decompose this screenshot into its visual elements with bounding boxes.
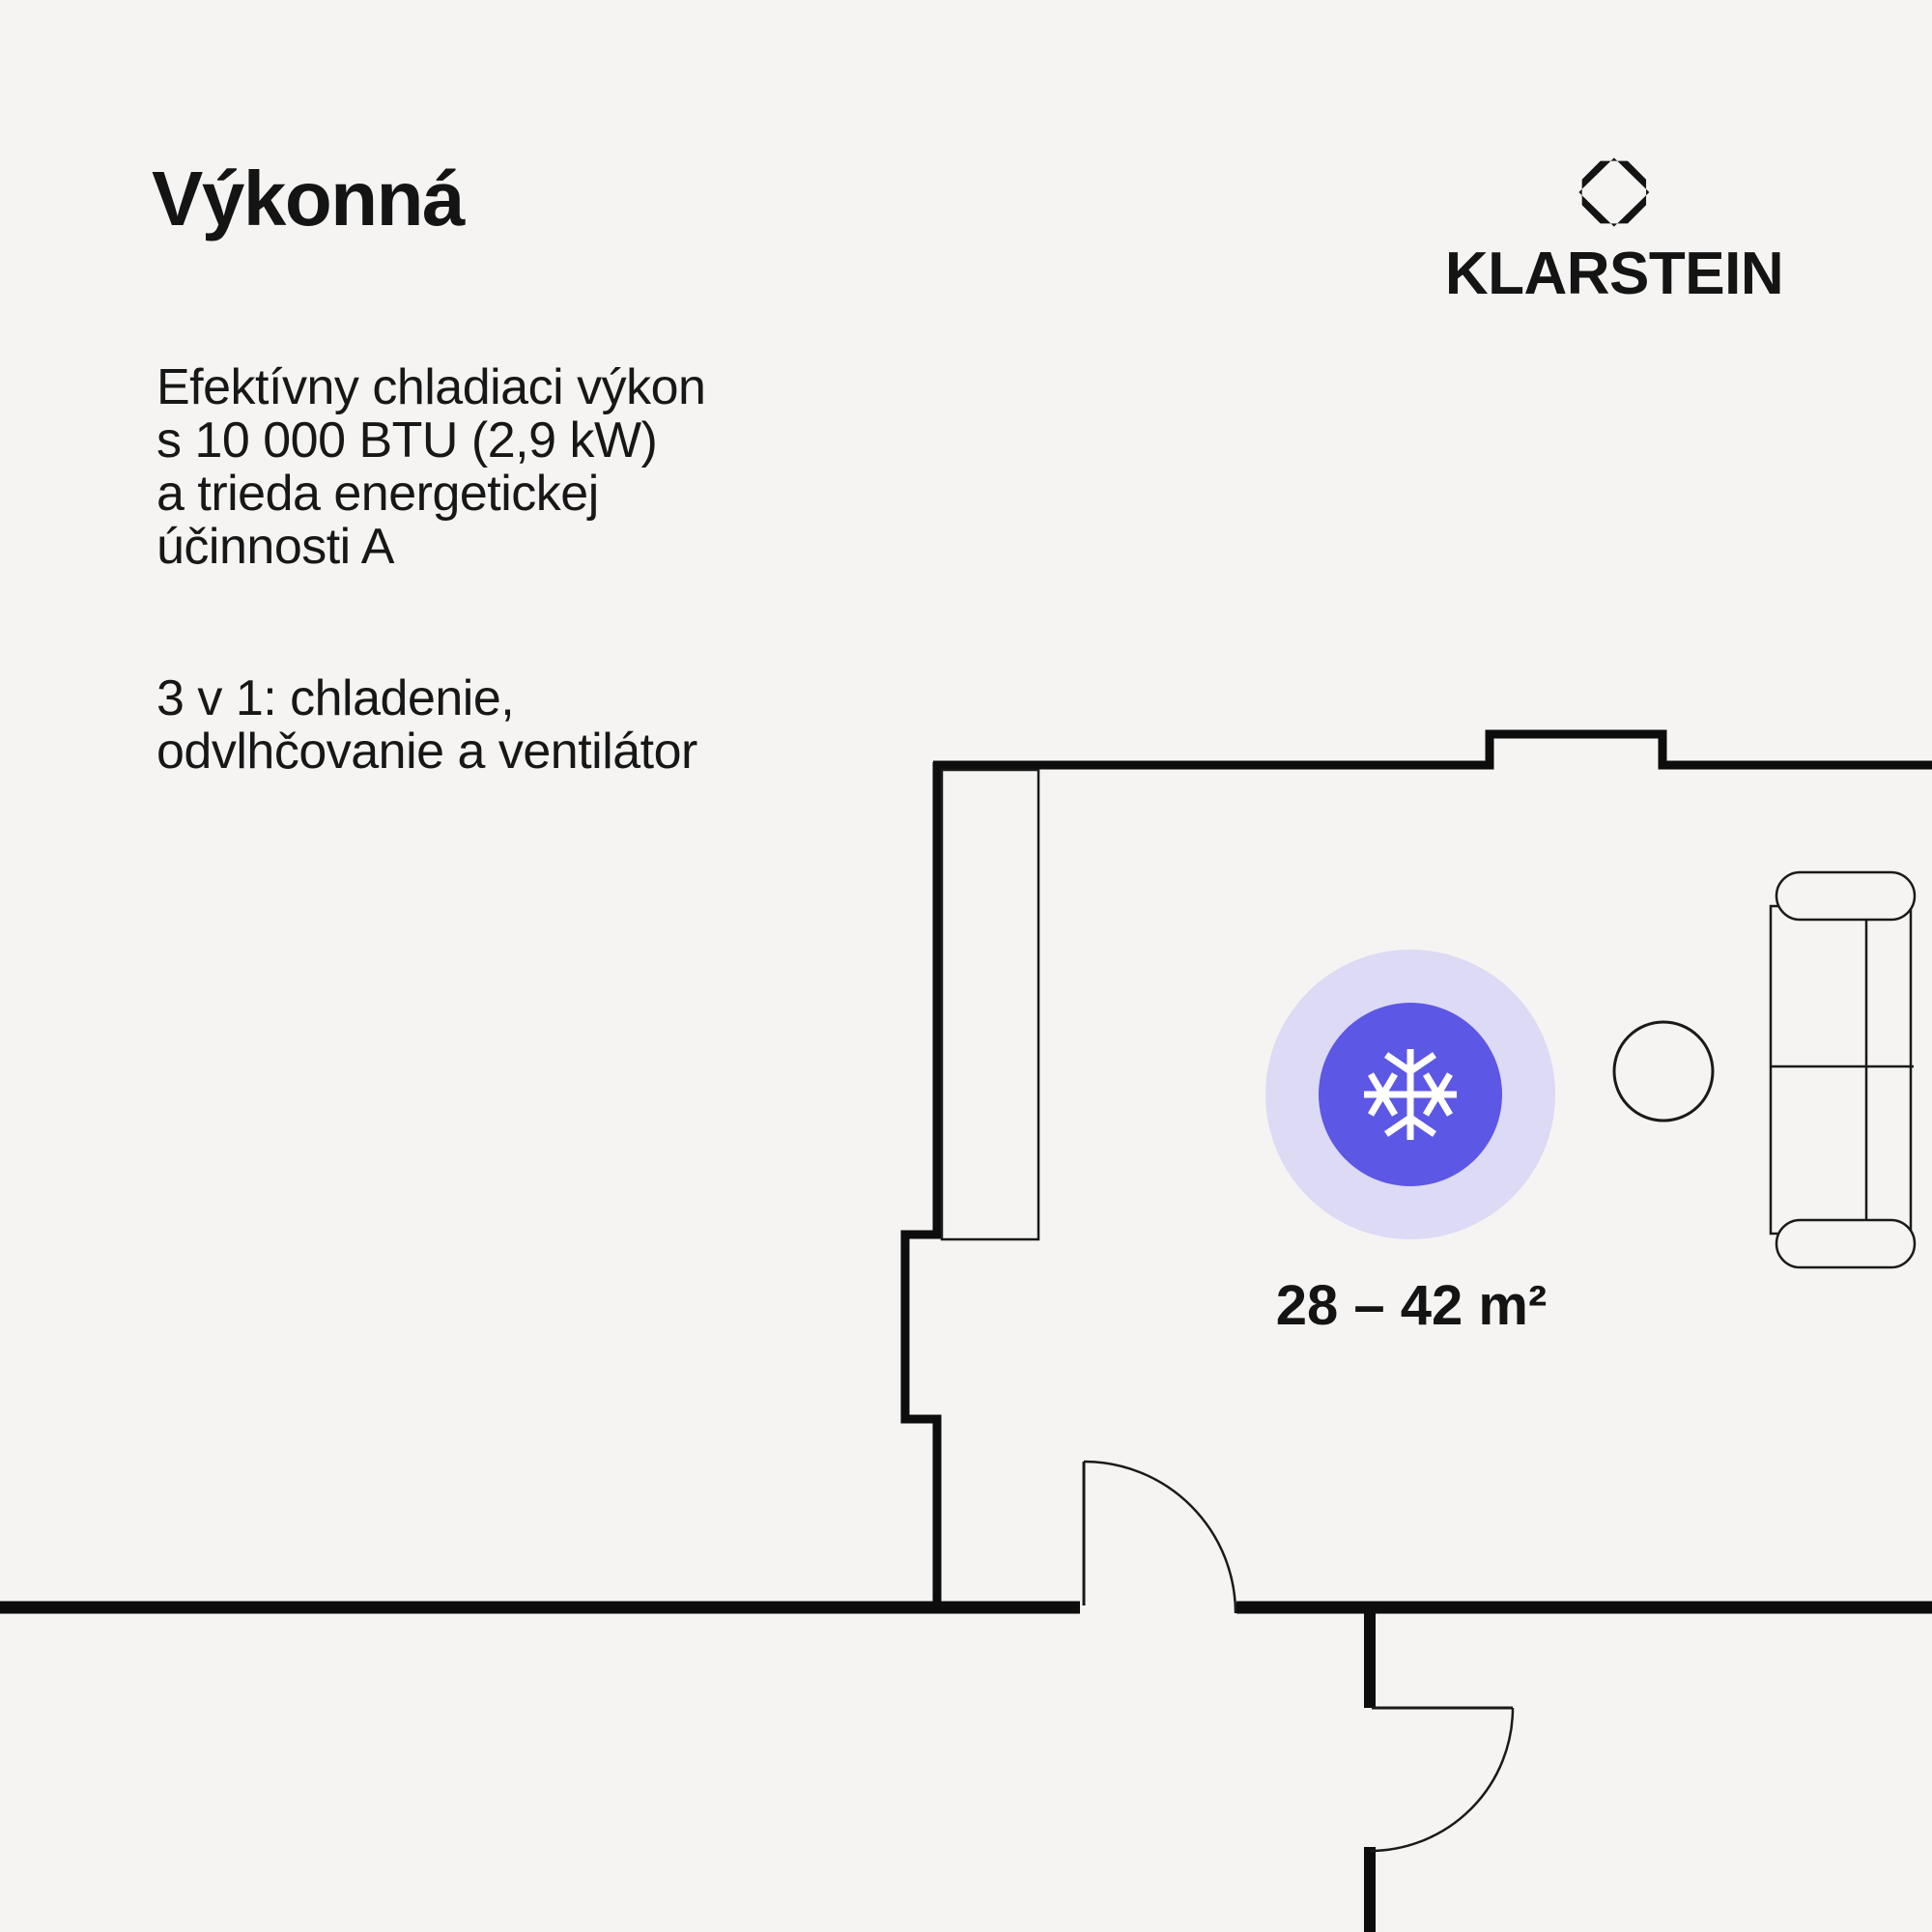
brand-logo: KLARSTEIN (1445, 155, 1783, 304)
feature-paragraph-3in1: 3 v 1: chladenie, odvlhčovanie a ventilá… (156, 672, 697, 779)
cabinet (942, 770, 1038, 1239)
klarstein-octagon-icon (1576, 155, 1653, 230)
door-swing-arc-right (1370, 1708, 1513, 1851)
paragraph-line: a trieda energetickej (156, 468, 705, 521)
paragraph-line: 3 v 1: chladenie, (156, 672, 697, 725)
paragraph-line: s 10 000 BTU (2,9 kW) (156, 414, 705, 468)
area-label: 28 – 42 m² (1276, 1273, 1548, 1338)
wall-top (933, 734, 1932, 765)
wall-left (905, 762, 937, 1609)
sofa (1771, 872, 1915, 1267)
door-swing-arc-bottom (1084, 1462, 1236, 1613)
feature-paragraph-cooling: Efektívny chladiaci výkon s 10 000 BTU (… (156, 361, 705, 574)
side-table (1614, 1022, 1713, 1121)
page-title: Výkonná (152, 160, 464, 238)
paragraph-line: odvlhčovanie a ventilátor (156, 725, 697, 779)
paragraph-line: Efektívny chladiaci výkon (156, 361, 705, 414)
sofa-armrest-top (1776, 872, 1915, 920)
cooling-range-badge (1265, 950, 1555, 1239)
infographic-canvas: Výkonná Efektívny chladiaci výkon s 10 0… (0, 0, 1932, 1932)
paragraph-line: účinnosti A (156, 521, 705, 574)
sofa-body (1771, 906, 1911, 1234)
sofa-armrest-bottom (1776, 1220, 1915, 1267)
brand-wordmark: KLARSTEIN (1445, 244, 1783, 304)
